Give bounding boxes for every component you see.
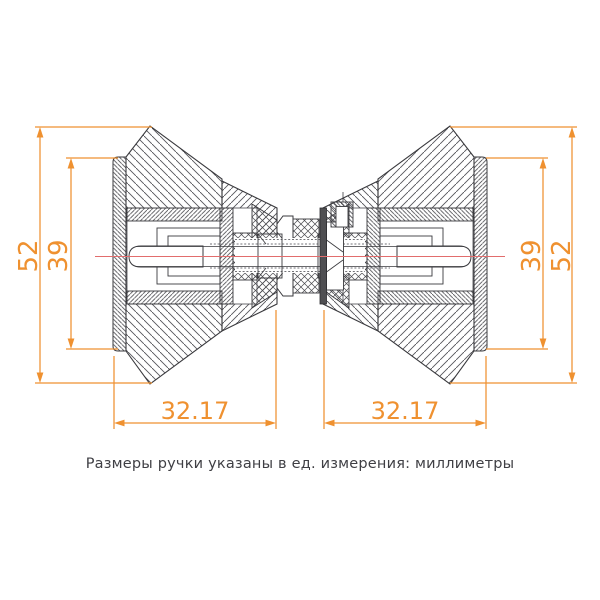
gasket-plate <box>320 208 327 304</box>
dim-left-inner <box>66 158 118 349</box>
dim-right-inner <box>486 158 548 349</box>
drawing-canvas: 52 39 39 52 32.17 32.17 Размеры ручки ук… <box>0 0 600 600</box>
units-note: Размеры ручки указаны в ед. измерения: м… <box>0 456 600 472</box>
knob-section-drawing <box>0 0 600 600</box>
